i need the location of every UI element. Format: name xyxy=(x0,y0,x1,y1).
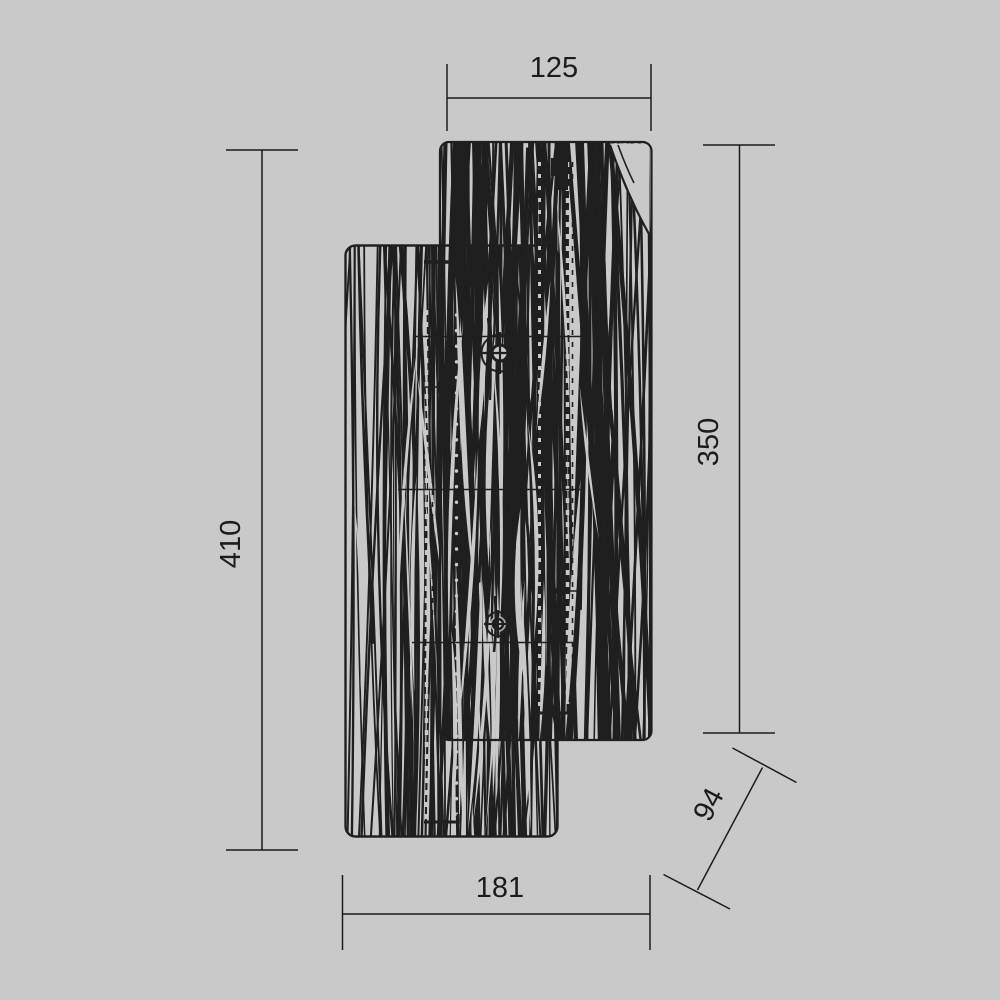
svg-text:410: 410 xyxy=(215,520,247,568)
svg-text:125: 125 xyxy=(530,52,578,84)
svg-text:350: 350 xyxy=(693,418,725,466)
svg-text:181: 181 xyxy=(476,872,524,904)
